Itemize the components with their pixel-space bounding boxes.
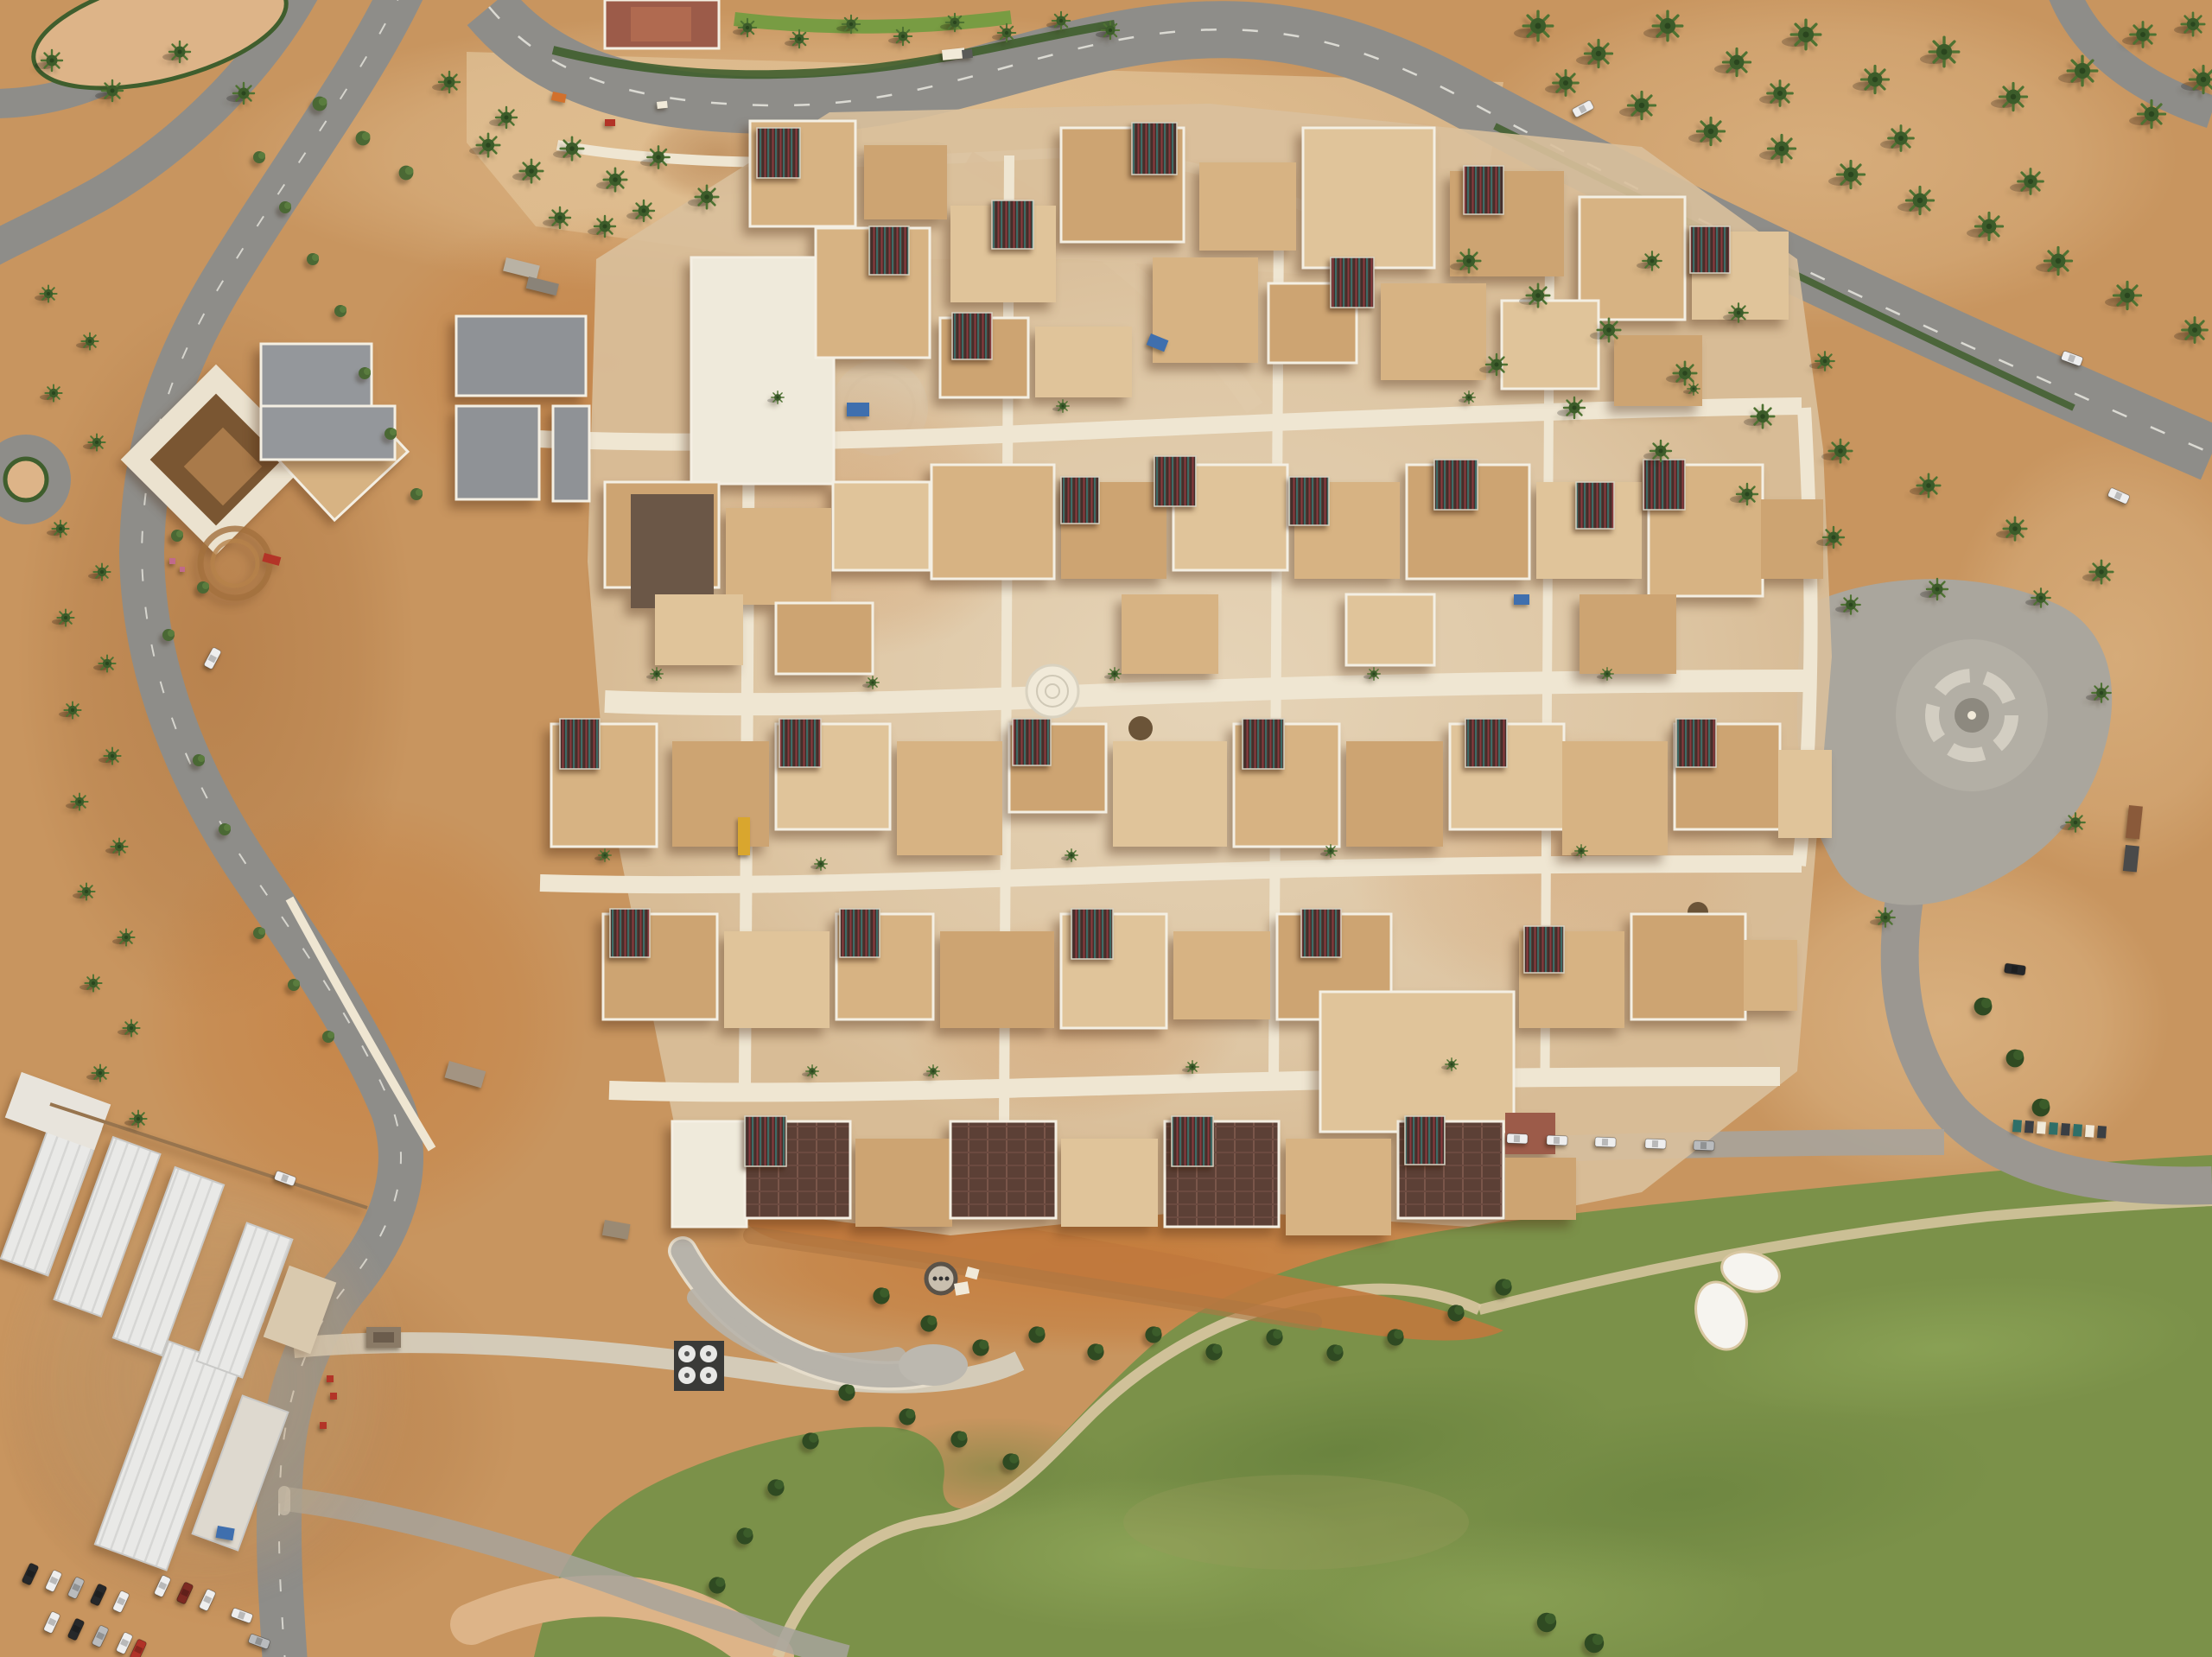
- dense-shrub: [1387, 1329, 1403, 1345]
- site-object: [2037, 1121, 2046, 1134]
- site-object: [2049, 1122, 2058, 1135]
- site-object: [738, 817, 750, 855]
- building-roof: [1303, 128, 1434, 268]
- dense-shrub: [920, 1315, 937, 1331]
- building-roof: [672, 1121, 747, 1227]
- dense-shrub: [1266, 1329, 1282, 1345]
- dense-shrub: [1326, 1344, 1343, 1361]
- building-roof: [1778, 750, 1832, 838]
- scaffold-mesh-panel: [1172, 1116, 1213, 1166]
- scaffold-mesh-panel: [757, 128, 800, 178]
- plaza-center-dot: [1967, 711, 1976, 720]
- building-roof: [1502, 301, 1599, 389]
- shaft-dot: [933, 1277, 938, 1281]
- scaffold-mesh-panel: [840, 909, 880, 957]
- shrub: [322, 1031, 334, 1043]
- shrub: [334, 305, 346, 317]
- site-object: [327, 1375, 334, 1382]
- shaft-dot: [945, 1277, 950, 1281]
- building-roof: [553, 406, 589, 501]
- dense-shrub: [1205, 1343, 1222, 1360]
- shrub: [356, 131, 371, 146]
- building-roof: [456, 406, 539, 499]
- dense-shrub: [2006, 1050, 2024, 1068]
- building-roof: [855, 1139, 952, 1227]
- building-roof: [1346, 594, 1434, 665]
- building-roof: [1173, 931, 1270, 1019]
- site-object: [2012, 1120, 2022, 1133]
- dry-turf-patch: [1123, 1475, 1469, 1570]
- scaffold-mesh-panel: [869, 226, 909, 275]
- shrub: [385, 428, 397, 440]
- dense-shrub: [802, 1432, 818, 1449]
- vehicle: [1595, 1137, 1616, 1147]
- building-roof: [940, 931, 1054, 1028]
- scaffold-mesh-panel: [1576, 482, 1614, 529]
- building-roof: [950, 1121, 1056, 1218]
- dense-shrub: [1447, 1305, 1464, 1321]
- circle-median: [5, 459, 47, 500]
- site-object: [373, 1332, 394, 1343]
- site-object: [657, 101, 668, 109]
- site-object: [2123, 845, 2139, 873]
- shaft-dot: [939, 1277, 944, 1281]
- building-roof: [1153, 257, 1258, 363]
- shrub: [253, 927, 265, 939]
- dense-shrub: [838, 1384, 855, 1400]
- scaffold-mesh-panel: [1643, 460, 1685, 510]
- scaffold-mesh-panel: [1331, 257, 1374, 308]
- fan-hub: [684, 1373, 690, 1378]
- building-roof: [1761, 499, 1823, 579]
- dense-shrub: [1585, 1634, 1604, 1653]
- fan-hub: [684, 1351, 690, 1356]
- site-object: [2085, 1125, 2094, 1138]
- scaffold-mesh-panel: [1690, 226, 1730, 273]
- building-roof: [1562, 741, 1668, 855]
- vehicle: [1507, 1133, 1528, 1144]
- fan-hub: [706, 1373, 711, 1378]
- building-roof: [897, 741, 1002, 855]
- site-object: [2061, 1123, 2070, 1136]
- dense-shrub: [1495, 1279, 1511, 1295]
- aerial-scene: [0, 0, 2212, 1657]
- shrub: [313, 97, 327, 111]
- building-roof: [672, 741, 769, 847]
- site-object: [2097, 1126, 2107, 1139]
- dense-shrub: [899, 1408, 915, 1425]
- dense-shrub: [736, 1527, 753, 1544]
- scaffold-mesh-panel: [1676, 719, 1716, 767]
- building-roof: [1346, 741, 1443, 847]
- building-roof: [1113, 741, 1227, 847]
- scaffold-mesh-panel: [1013, 719, 1051, 765]
- dense-shrub: [709, 1577, 725, 1593]
- scaffold-mesh-panel: [1154, 456, 1196, 506]
- dense-shrub: [1087, 1343, 1103, 1360]
- vehicle-windshield: [1700, 1142, 1707, 1149]
- scaffold-mesh-panel: [1301, 909, 1341, 957]
- site-object: [962, 49, 973, 59]
- vehicle-windshield: [1652, 1140, 1658, 1147]
- site-object: [1514, 594, 1529, 605]
- vehicle-windshield: [2011, 965, 2018, 973]
- site-object: [847, 403, 869, 416]
- dense-shrub: [1002, 1453, 1019, 1470]
- vehicle-windshield: [1554, 1137, 1560, 1144]
- scaffold-mesh-panel: [1289, 477, 1329, 525]
- shrub: [410, 488, 423, 500]
- building-roof: [631, 494, 714, 608]
- vehicle: [1547, 1135, 1567, 1146]
- building-roof: [864, 145, 947, 219]
- scaffold-mesh-panel: [745, 1116, 786, 1166]
- site-object: [169, 558, 175, 564]
- building-roof: [1320, 992, 1514, 1132]
- scaffold-mesh-panel: [952, 313, 992, 359]
- building-roof: [1122, 594, 1218, 674]
- shrub: [253, 151, 265, 163]
- site-object: [180, 567, 185, 572]
- shrub: [197, 581, 209, 594]
- scaffold-mesh-panel: [560, 719, 600, 769]
- building-roof: [931, 465, 1054, 579]
- dense-shrub: [767, 1479, 784, 1495]
- vehicle-windshield: [1514, 1135, 1520, 1142]
- scaffold-mesh-panel: [1465, 719, 1507, 767]
- dense-shrub: [873, 1287, 889, 1304]
- aerial-photo: [0, 0, 2212, 1657]
- building-roof: [724, 931, 829, 1028]
- vehicle: [1645, 1139, 1666, 1149]
- building-roof: [1286, 1139, 1391, 1235]
- fountain-plaza: [1027, 665, 1078, 717]
- vehicle-windshield: [1602, 1139, 1608, 1146]
- building-roof: [261, 406, 395, 460]
- building-roof: [1199, 162, 1296, 251]
- site-object: [2024, 1121, 2034, 1133]
- scaffold-mesh-panel: [610, 909, 650, 957]
- scaffold-mesh-panel: [1405, 1116, 1445, 1165]
- dense-shrub: [1537, 1613, 1556, 1632]
- dense-shrub: [2032, 1099, 2050, 1117]
- site-object: [320, 1422, 327, 1429]
- dense-shrub: [1974, 998, 1993, 1016]
- shrub: [359, 367, 371, 379]
- ramp-landing: [899, 1344, 968, 1386]
- site-object: [2073, 1124, 2082, 1137]
- shrub: [219, 823, 231, 835]
- scaffold-mesh-panel: [1524, 926, 1564, 973]
- dense-shrub: [1028, 1326, 1045, 1343]
- scaffold-mesh-panel: [1061, 477, 1099, 524]
- building-roof: [1744, 940, 1797, 1011]
- shrub: [307, 253, 319, 265]
- building-roof: [726, 508, 831, 605]
- gatehouse-roof-inner: [631, 7, 691, 41]
- building-roof: [456, 316, 586, 396]
- dense-shrub: [972, 1339, 988, 1355]
- site-object: [605, 119, 615, 126]
- scaffold-mesh-panel: [779, 719, 821, 767]
- shrub: [162, 629, 175, 641]
- building-roof: [776, 603, 873, 674]
- building-roof: [1035, 327, 1132, 397]
- dense-shrub: [950, 1431, 967, 1447]
- building-roof: [1381, 283, 1486, 380]
- site-object: [330, 1393, 337, 1400]
- shrub: [399, 166, 414, 181]
- scaffold-mesh-panel: [1132, 123, 1177, 175]
- building-roof: [833, 482, 930, 570]
- scaffold-mesh-panel: [1434, 460, 1478, 510]
- scaffold-mesh-panel: [992, 200, 1033, 249]
- scaffold-mesh-panel: [1243, 719, 1284, 769]
- building-roof: [655, 594, 743, 665]
- dense-shrub: [1145, 1326, 1161, 1343]
- building-roof: [1505, 1158, 1576, 1220]
- building-roof: [1580, 594, 1676, 674]
- round-planter: [1128, 716, 1153, 740]
- scaffold-mesh-panel: [1464, 166, 1503, 214]
- building-roof: [691, 257, 834, 484]
- shrub: [171, 530, 183, 542]
- shrub: [288, 979, 300, 991]
- scaffold-mesh-panel: [1071, 909, 1113, 959]
- building-roof: [1631, 914, 1745, 1019]
- work-tent: [954, 1281, 969, 1296]
- building-roof: [1061, 1139, 1158, 1227]
- vehicle: [1694, 1140, 1714, 1151]
- shrub: [279, 201, 291, 213]
- shrub: [193, 754, 205, 766]
- fan-hub: [706, 1351, 711, 1356]
